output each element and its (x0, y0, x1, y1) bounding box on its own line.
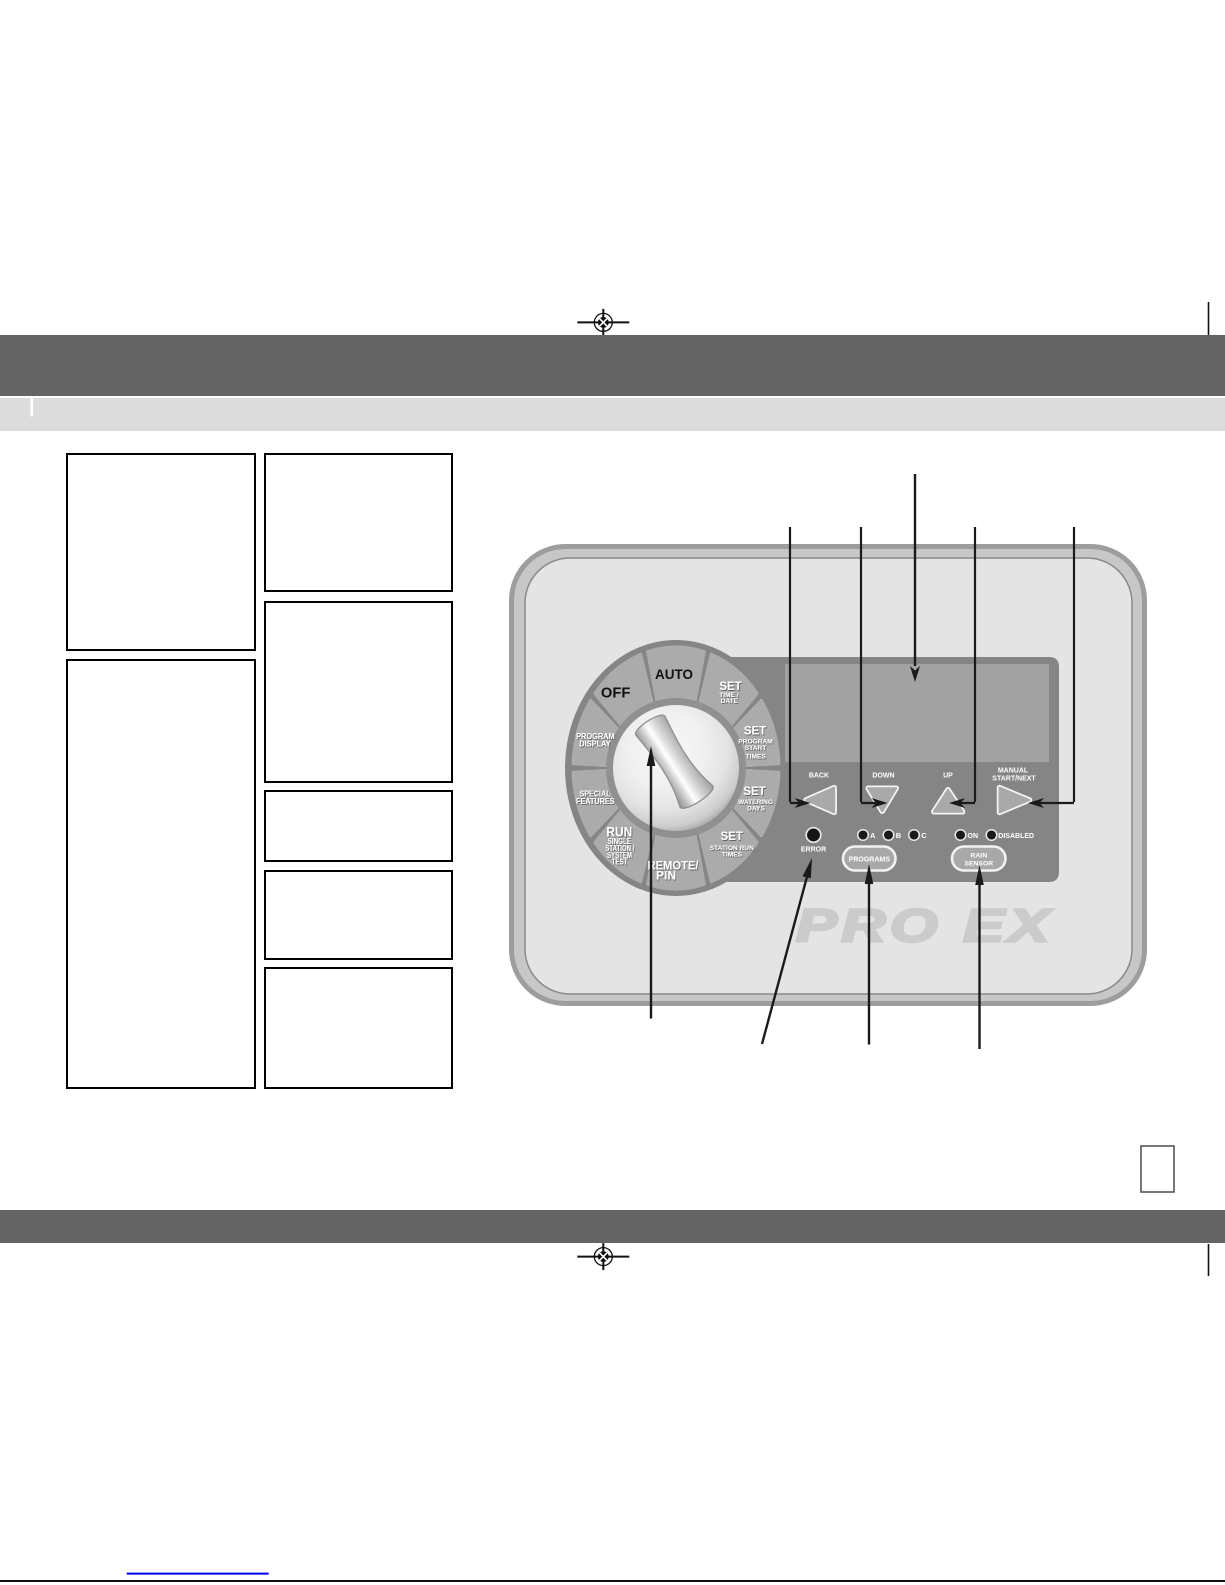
svg-text:UP: UP (943, 773, 953, 780)
svg-text:DISABLED: DISABLED (998, 833, 1034, 840)
svg-text:C: C (921, 831, 927, 840)
svg-text:RAIN: RAIN (970, 853, 987, 860)
svg-text:TEST: TEST (612, 857, 628, 866)
svg-text:PIN: PIN (656, 869, 676, 883)
svg-text:MANUAL: MANUAL (998, 768, 1029, 775)
svg-text:SENSOR: SENSOR (964, 861, 993, 868)
svg-text:ON: ON (968, 833, 979, 840)
svg-text:DATE: DATE (721, 698, 739, 705)
svg-text:PROGRAMS: PROGRAMS (849, 856, 891, 863)
svg-text:OFF: OFF (601, 685, 631, 701)
svg-text:FEATURES: FEATURES (576, 797, 615, 806)
svg-text:SET: SET (721, 831, 743, 843)
svg-text:ERROR: ERROR (801, 847, 826, 854)
svg-text:SET: SET (744, 726, 766, 738)
svg-text:START: START (745, 745, 767, 752)
svg-text:TIMES: TIMES (722, 851, 743, 858)
svg-text:A: A (870, 831, 876, 840)
svg-text:SET: SET (743, 786, 765, 798)
svg-text:BACK: BACK (809, 773, 829, 780)
svg-text:PRO EX: PRO EX (796, 901, 1054, 952)
svg-text:B: B (896, 831, 902, 840)
svg-text:DOWN: DOWN (872, 773, 894, 780)
svg-text:START/NEXT: START/NEXT (992, 776, 1036, 783)
svg-text:TIMES: TIMES (746, 753, 767, 760)
svg-text:DISPLAY: DISPLAY (579, 740, 611, 749)
svg-text:AUTO: AUTO (655, 667, 693, 682)
svg-text:DAYS: DAYS (747, 806, 765, 813)
